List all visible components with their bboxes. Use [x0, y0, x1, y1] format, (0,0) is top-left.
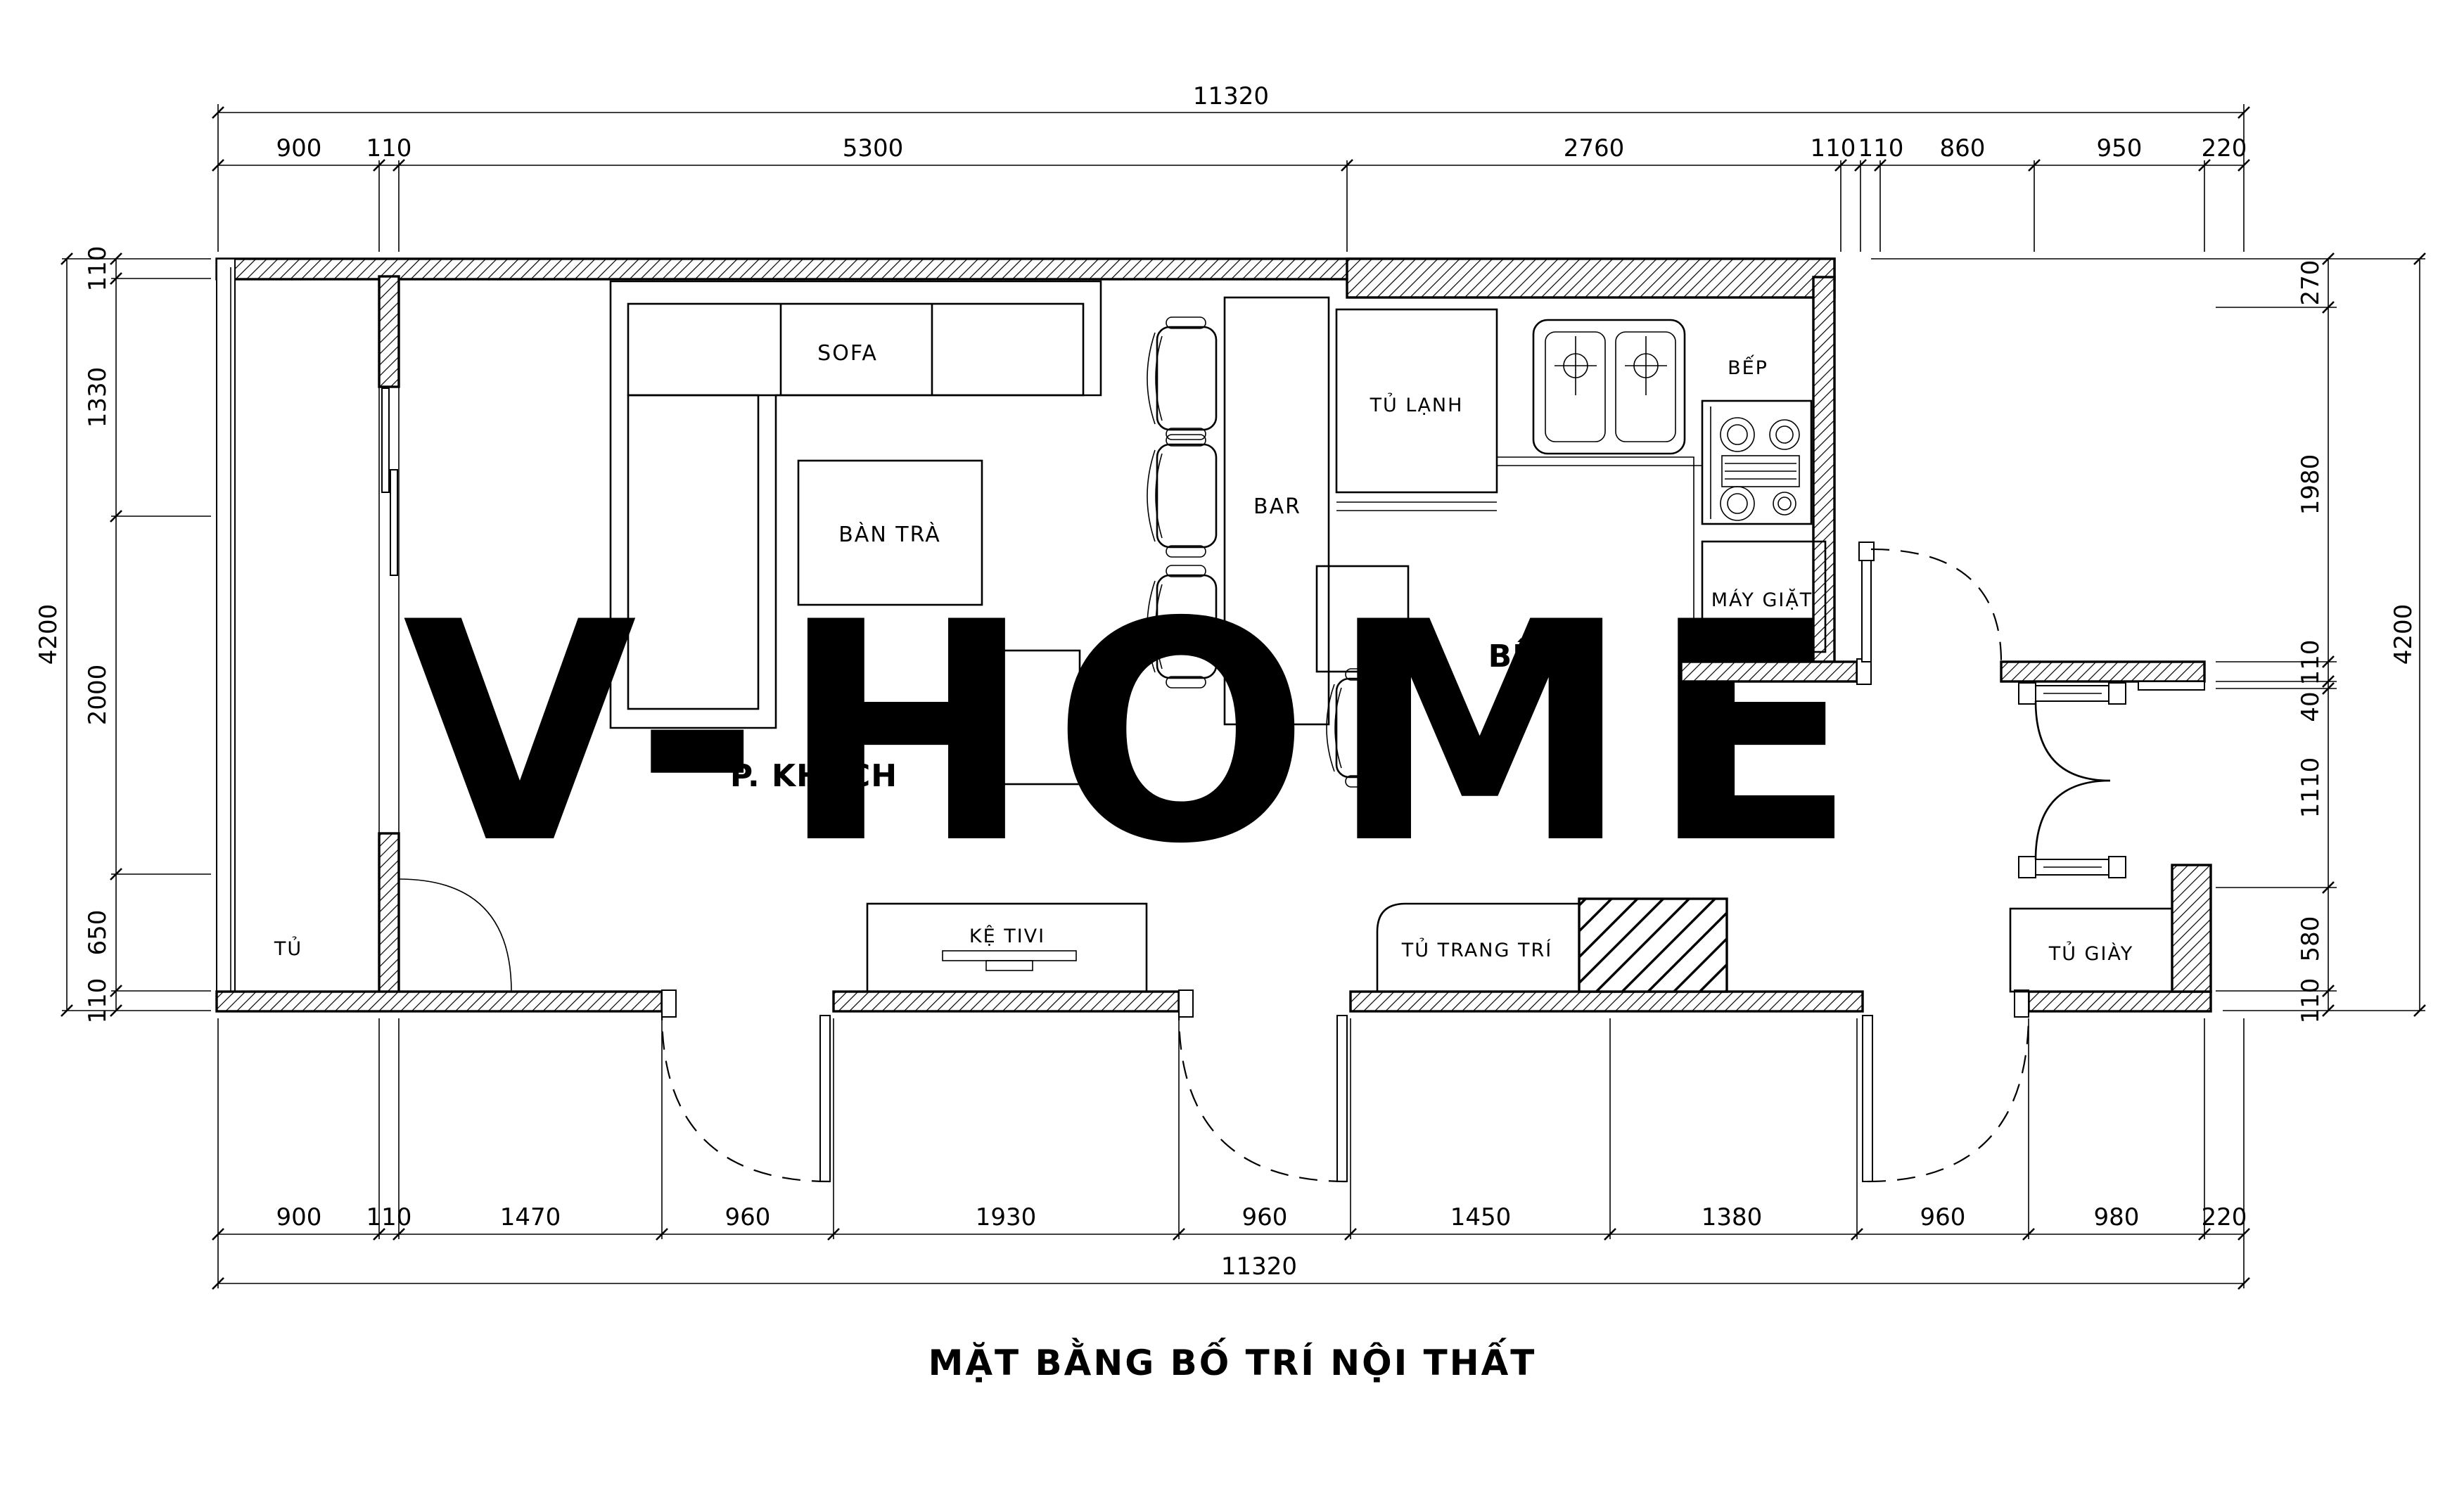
dim-right-1: 1980 — [2297, 454, 2325, 515]
sofa-label: SOFA — [817, 341, 878, 366]
dim-top-2: 5300 — [843, 134, 904, 162]
dim-right-3: 40 — [2297, 691, 2325, 722]
dim-top-6: 860 — [1940, 134, 1986, 162]
wall-top-kitchen — [1347, 259, 1834, 297]
dim-top-1: 110 — [366, 134, 412, 162]
door1-jamb — [662, 990, 676, 1017]
dim-right-0: 270 — [2297, 260, 2325, 306]
dim-top-8: 220 — [2202, 134, 2247, 162]
kitchen-door-cap — [1859, 542, 1874, 561]
wall-hall-step — [2138, 681, 2204, 690]
fridge-label: TỦ LẠNH — [1370, 392, 1464, 416]
wall-entry-column — [2172, 865, 2211, 992]
closet-label: TỦ — [274, 936, 302, 960]
living-room-label: P. KHÁCH — [730, 757, 898, 794]
dim-left-4: 110 — [84, 978, 112, 1024]
dim-right-5: 580 — [2297, 916, 2325, 962]
wall-bottom-2 — [834, 992, 1179, 1011]
dim-bottom-9: 980 — [2094, 1203, 2140, 1231]
dim-bottom-4: 1930 — [976, 1203, 1037, 1231]
dim-bottom-2: 1470 — [500, 1203, 561, 1231]
dim-bottom-6: 1450 — [1450, 1203, 1512, 1231]
dim-top-7: 950 — [2097, 134, 2143, 162]
dim-top-total: 11320 — [1193, 82, 1269, 110]
dim-bottom-total: 11320 — [1221, 1253, 1297, 1281]
wall-left-window — [217, 259, 235, 1011]
dim-bottom-3: 960 — [725, 1203, 771, 1231]
washer-label: MÁY GIẶT — [1711, 588, 1813, 611]
door-jamb-kitchen — [1857, 659, 1871, 684]
dim-bottom-7: 1380 — [1702, 1203, 1763, 1231]
floor-plan-svg: V-HOME — [0, 0, 2464, 1486]
drawing-sheet: V-HOME — [0, 0, 2464, 1486]
dim-top-4: 110 — [1811, 134, 1856, 162]
dim-left-1: 1330 — [84, 367, 112, 428]
dim-top-3: 2760 — [1564, 134, 1625, 162]
wall-hall — [2001, 662, 2204, 681]
sliding-panel-2 — [390, 470, 397, 575]
tv-shelf-label: KỆ TIVI — [969, 925, 1045, 947]
shoe-cabinet-label: TỦ GIÀY — [2048, 941, 2134, 965]
kitchen-door-leaf — [1862, 549, 1871, 662]
dim-bottom-5: 960 — [1242, 1203, 1288, 1231]
partition-lower — [379, 833, 399, 994]
dim-right-2: 110 — [2297, 640, 2325, 686]
door2-jamb — [1179, 990, 1193, 1017]
dim-left-3: 650 — [84, 910, 112, 956]
kitchen-room-label: BẾP — [1488, 634, 1558, 674]
deco-cabinet-label: TỦ TRANG TRÍ — [1401, 937, 1552, 961]
wall-bottom-4 — [2029, 992, 2211, 1011]
dim-left-0: 110 — [84, 246, 112, 292]
dim-top-5: 110 — [1858, 134, 1904, 162]
drawing-title: MẶT BẰNG BỐ TRÍ NỘI THẤT — [928, 1338, 1537, 1383]
dim-bottom-8: 960 — [1920, 1203, 1966, 1231]
dim-top-0: 900 — [276, 134, 322, 162]
dim-right-4: 1110 — [2297, 757, 2325, 819]
entry-door-jamb-top-right — [2109, 683, 2126, 704]
bar-label: BAR — [1253, 494, 1301, 519]
structural-block — [1579, 899, 1727, 992]
dim-left-total: 4200 — [34, 604, 63, 665]
dim-left-2: 2000 — [84, 665, 112, 726]
dim-bottom-10: 220 — [2202, 1203, 2247, 1231]
dim-right-6: 110 — [2297, 978, 2325, 1024]
sliding-panel-1 — [382, 388, 389, 492]
dim-bottom-1: 110 — [366, 1203, 412, 1231]
partition-upper — [379, 276, 399, 387]
dim-right-total: 4200 — [2389, 604, 2418, 665]
wall-kitchen-right — [1813, 277, 1834, 662]
stove-area-label: BẾP — [1728, 354, 1768, 379]
entry-door-jamb-bottom-left — [2019, 857, 2036, 878]
wall-kitchen-stub — [1681, 662, 1857, 681]
door3-leaf — [1863, 1016, 1872, 1181]
dim-bottom-0: 900 — [276, 1203, 322, 1231]
wall-bottom-1 — [217, 992, 662, 1011]
watermark-text: V-HOME — [402, 558, 1876, 910]
door1-leaf — [820, 1016, 830, 1181]
door2-leaf — [1337, 1016, 1347, 1181]
wall-bottom-3 — [1351, 992, 1863, 1011]
entry-door-jamb-top-left — [2019, 683, 2036, 704]
coffee-table-label: BÀN TRÀ — [838, 522, 941, 547]
door3-jamb — [2015, 990, 2029, 1017]
entry-door-jamb-bottom-right — [2109, 857, 2126, 878]
